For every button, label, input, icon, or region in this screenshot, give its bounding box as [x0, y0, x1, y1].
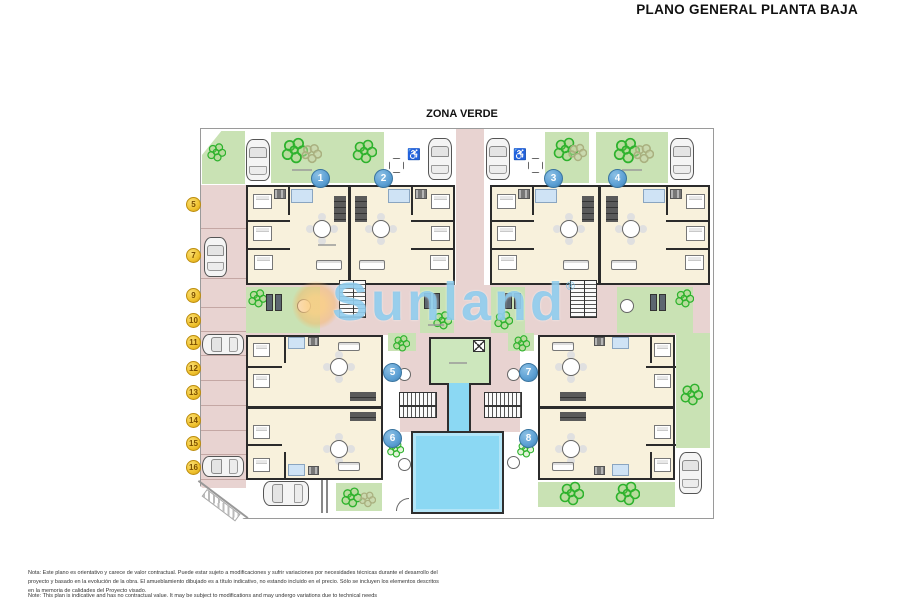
- sofa: [316, 260, 342, 270]
- parking-divider: [201, 331, 246, 332]
- tree-icon: [351, 138, 377, 164]
- bed: [253, 458, 270, 472]
- room-label: [449, 362, 467, 364]
- pool-channel: [447, 383, 471, 433]
- room-label: [428, 324, 444, 326]
- car: [204, 237, 227, 277]
- wardrobe: [308, 466, 319, 475]
- bed: [654, 374, 671, 388]
- wall: [532, 187, 534, 215]
- page-title: PLANO GENERAL PLANTA BAJA: [636, 2, 858, 17]
- bathroom: [291, 189, 313, 203]
- sun-lounger: [266, 294, 273, 311]
- unit-marker-5[interactable]: 5: [383, 363, 402, 382]
- bed: [497, 194, 516, 209]
- wall: [666, 187, 668, 215]
- parking-marker: 13: [186, 385, 201, 400]
- bed: [686, 194, 705, 209]
- bathroom: [612, 464, 629, 476]
- wall: [248, 406, 381, 409]
- sofa: [563, 260, 589, 270]
- kitchen: [355, 196, 367, 222]
- wardrobe: [274, 189, 286, 199]
- patio-table: [507, 368, 520, 381]
- patio-table: [398, 458, 411, 471]
- plant-icon: [674, 288, 694, 308]
- accessible-parking-icon: ♿: [407, 150, 421, 161]
- car: [202, 456, 244, 477]
- parking-divider: [201, 380, 246, 381]
- parking-divider: [201, 454, 246, 455]
- plant-icon: [247, 288, 267, 308]
- bed: [253, 226, 272, 241]
- parking-marker: 11: [186, 335, 201, 350]
- wall: [492, 220, 534, 222]
- swimming-pool: [411, 431, 504, 514]
- technical-room: [473, 340, 485, 352]
- sun-lounger: [275, 294, 282, 311]
- parking-marker: 5: [186, 197, 201, 212]
- bed: [430, 255, 449, 270]
- room-label: [292, 169, 312, 171]
- sofa: [611, 260, 637, 270]
- wall: [646, 444, 680, 446]
- bed: [253, 374, 270, 388]
- dining-table: [562, 358, 580, 376]
- parking-divider: [201, 278, 246, 279]
- sun-lounger: [514, 293, 521, 309]
- tree-icon: [614, 480, 640, 506]
- parking-marker: 16: [186, 460, 201, 475]
- kitchen: [560, 412, 586, 421]
- kitchen: [582, 196, 594, 222]
- olive-tree-icon: [632, 142, 654, 164]
- wardrobe: [308, 337, 319, 346]
- patio-table: [297, 299, 311, 313]
- wall: [540, 406, 673, 409]
- unit-marker-3[interactable]: 3: [544, 169, 563, 188]
- car: [670, 138, 694, 180]
- kitchen: [350, 412, 376, 421]
- olive-tree-icon: [358, 490, 376, 508]
- bed: [654, 458, 671, 472]
- parking-marker: 14: [186, 413, 201, 428]
- tree-icon: [558, 480, 584, 506]
- dining-table: [330, 440, 348, 458]
- wall: [248, 220, 290, 222]
- sun-lounger: [659, 294, 666, 311]
- bed: [498, 255, 517, 270]
- wardrobe: [594, 466, 605, 475]
- car: [246, 139, 270, 181]
- wardrobe: [415, 189, 427, 199]
- sofa: [338, 462, 360, 471]
- wardrobe: [594, 337, 605, 346]
- parking-marker: 10: [186, 313, 201, 328]
- stairs: [570, 280, 597, 318]
- bathroom: [388, 189, 410, 203]
- parking-divider: [201, 307, 246, 308]
- stairs: [339, 280, 366, 318]
- parking-marker: 9: [186, 288, 201, 303]
- parking-divider: [201, 355, 246, 356]
- unit-marker-2[interactable]: 2: [374, 169, 393, 188]
- bed: [431, 226, 450, 241]
- kitchen: [350, 392, 376, 401]
- kitchen: [606, 196, 618, 222]
- room-label: [318, 244, 336, 246]
- bed: [654, 425, 671, 439]
- wall: [248, 248, 290, 250]
- wall: [598, 187, 601, 283]
- accessible-parking-icon: ♿: [513, 150, 527, 161]
- bed: [654, 343, 671, 357]
- dining-table: [622, 220, 640, 238]
- bed: [253, 343, 270, 357]
- patio-table: [620, 299, 634, 313]
- car: [428, 138, 452, 180]
- wall: [248, 444, 282, 446]
- plant-icon: [206, 142, 226, 162]
- unit-marker-6[interactable]: 6: [383, 429, 402, 448]
- plant-icon: [392, 334, 410, 352]
- wall: [411, 248, 453, 250]
- car: [679, 452, 702, 494]
- unit-marker-1[interactable]: 1: [311, 169, 330, 188]
- bed: [686, 226, 705, 241]
- wall: [284, 337, 286, 363]
- fence: [326, 480, 328, 513]
- bathroom: [288, 464, 305, 476]
- dining-table: [313, 220, 331, 238]
- parking-divider: [201, 228, 246, 229]
- patio-table: [389, 158, 404, 173]
- parking-marker: 15: [186, 436, 201, 451]
- unit-marker-7[interactable]: 7: [519, 363, 538, 382]
- wall: [666, 248, 708, 250]
- plant-icon: [432, 310, 452, 330]
- bathroom: [535, 189, 557, 203]
- kitchen: [334, 196, 346, 222]
- sofa: [338, 342, 360, 351]
- unit-marker-8[interactable]: 8: [519, 429, 538, 448]
- sun-lounger: [650, 294, 657, 311]
- wall: [650, 337, 652, 363]
- bed: [253, 425, 270, 439]
- sun-lounger: [505, 293, 512, 309]
- zona-verde-label: ZONA VERDE: [402, 108, 522, 120]
- plant-icon: [679, 382, 703, 406]
- bed: [253, 194, 272, 209]
- patio-table: [528, 158, 543, 173]
- wall: [411, 220, 453, 222]
- wall: [284, 452, 286, 478]
- unit-marker-4[interactable]: 4: [608, 169, 627, 188]
- parking-marker: 12: [186, 361, 201, 376]
- kitchen: [560, 392, 586, 401]
- bathroom: [612, 337, 629, 349]
- parking-divider: [201, 405, 246, 406]
- dining-table: [372, 220, 390, 238]
- sun-lounger: [433, 293, 440, 309]
- car: [202, 334, 244, 355]
- car: [486, 138, 510, 180]
- bathroom: [643, 189, 665, 203]
- sofa: [359, 260, 385, 270]
- stairs: [484, 392, 522, 418]
- dining-table: [560, 220, 578, 238]
- stairs: [399, 392, 437, 418]
- walkway: [456, 129, 484, 285]
- floor-plan-page: PLANO GENERAL PLANTA BAJA ZONA VERDE ♿ ♿: [0, 0, 900, 600]
- room-label: [622, 169, 642, 171]
- car: [263, 481, 309, 506]
- wardrobe: [518, 189, 530, 199]
- wall: [650, 452, 652, 478]
- plant-icon: [493, 310, 513, 330]
- bed: [497, 226, 516, 241]
- wall: [666, 220, 708, 222]
- bed: [431, 194, 450, 209]
- bed: [685, 255, 704, 270]
- disclaimer-en: Note: This plan is indicative and has no…: [28, 592, 458, 600]
- sun-lounger: [424, 293, 431, 309]
- parking-divider: [201, 479, 246, 480]
- sofa: [552, 462, 574, 471]
- bed: [254, 255, 273, 270]
- wall: [288, 187, 290, 215]
- wall: [248, 366, 282, 368]
- wall: [492, 248, 534, 250]
- wall: [411, 187, 413, 215]
- wall: [646, 366, 680, 368]
- sofa: [552, 342, 574, 351]
- dining-table: [330, 358, 348, 376]
- olive-tree-icon: [567, 142, 587, 162]
- plant-icon: [512, 334, 530, 352]
- parking-divider: [201, 430, 246, 431]
- olive-tree-icon: [300, 142, 322, 164]
- parking-marker: 7: [186, 248, 201, 263]
- wardrobe: [670, 189, 682, 199]
- dining-table: [562, 440, 580, 458]
- wall: [348, 187, 351, 283]
- fence: [321, 480, 323, 513]
- bathroom: [288, 337, 305, 349]
